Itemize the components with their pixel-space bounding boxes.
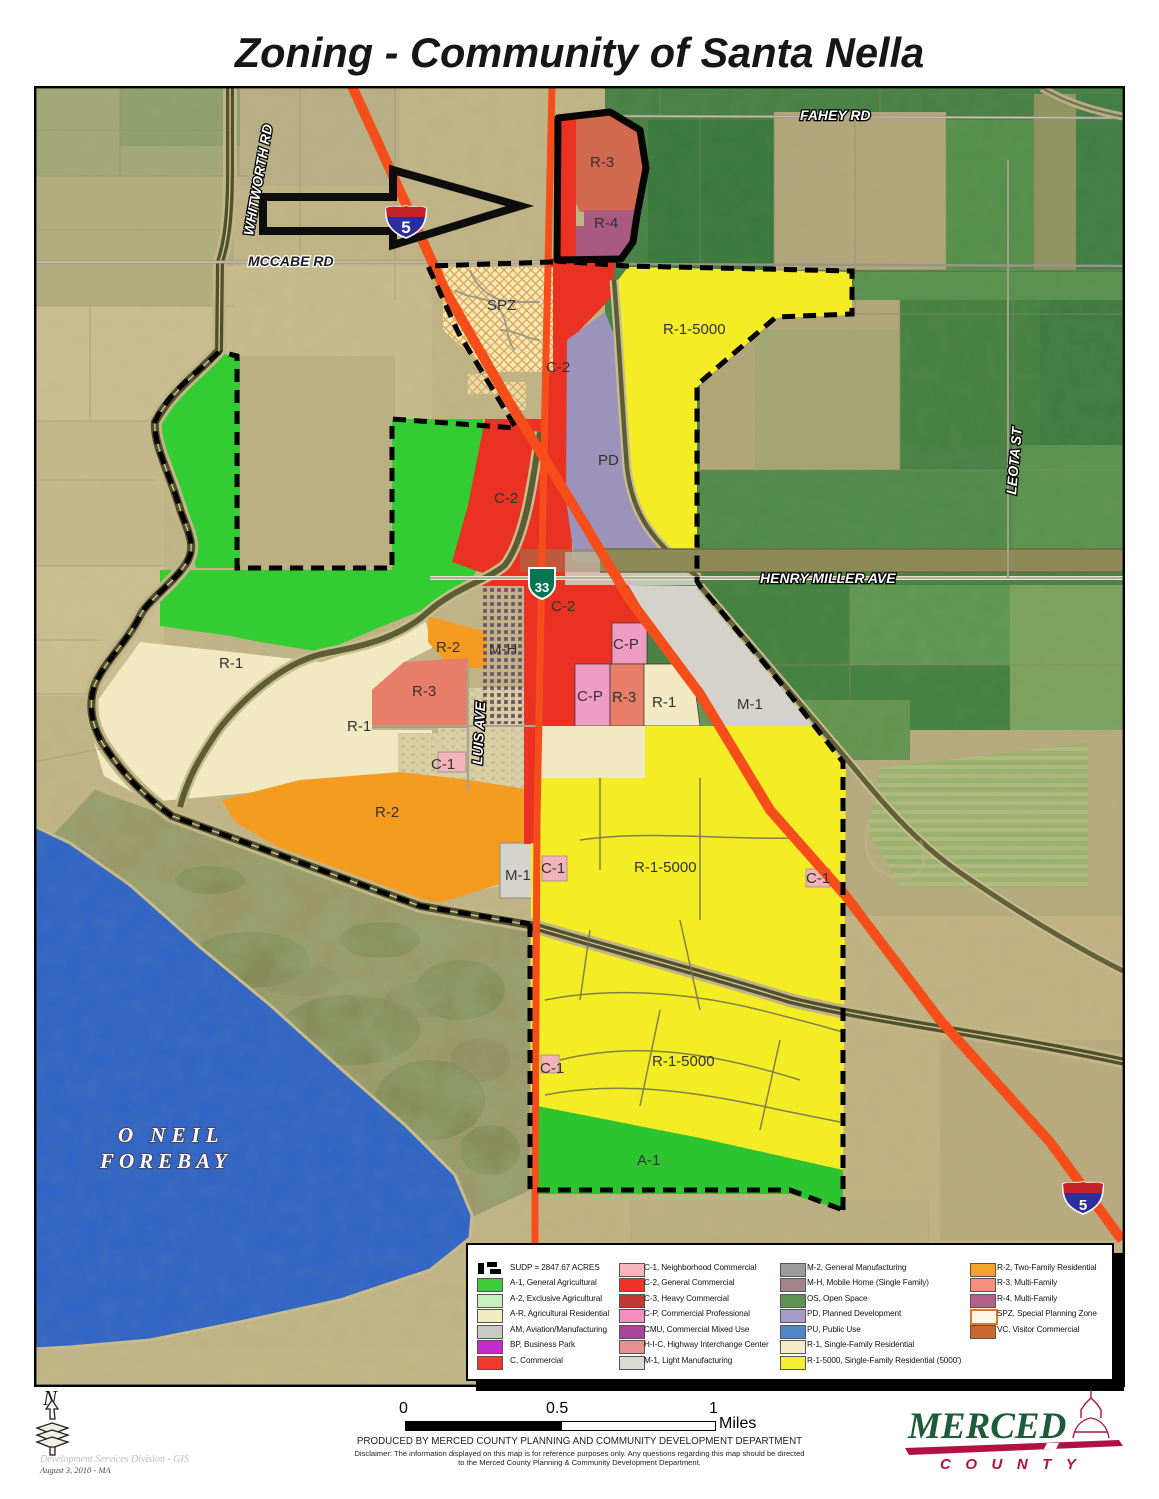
svg-text:R-1: R-1 — [347, 718, 371, 735]
svg-text:R-1-5000: R-1-5000 — [652, 1053, 715, 1070]
svg-text:R-3: R-3 — [612, 689, 636, 706]
svg-text:LUIS AVE: LUIS AVE — [469, 701, 488, 765]
svg-text:C-P: C-P — [577, 688, 603, 705]
svg-text:SPZ: SPZ — [487, 297, 516, 314]
svg-text:HENRY MILLER AVE: HENRY MILLER AVE — [760, 570, 896, 586]
svg-text:R-3: R-3 — [590, 154, 614, 171]
svg-text:COUNTY: COUNTY — [940, 1456, 1090, 1473]
svg-text:FOREBAY: FOREBAY — [99, 1149, 232, 1173]
svg-text:R-1: R-1 — [652, 694, 676, 711]
svg-text:C-2: C-2 — [546, 359, 570, 376]
svg-text:R-3: R-3 — [412, 683, 436, 700]
svg-text:5: 5 — [401, 218, 410, 237]
svg-text:R-2: R-2 — [436, 639, 460, 656]
svg-text:33: 33 — [535, 580, 549, 595]
svg-text:R-1: R-1 — [219, 655, 243, 672]
svg-text:R-4: R-4 — [594, 215, 618, 232]
svg-text:PD: PD — [598, 452, 619, 469]
svg-text:R-1-5000: R-1-5000 — [663, 321, 726, 338]
svg-text:C-2: C-2 — [494, 490, 518, 507]
svg-text:M-1: M-1 — [505, 867, 531, 884]
svg-text:M-1: M-1 — [737, 696, 763, 713]
svg-text:MCCABE RD: MCCABE RD — [248, 253, 334, 269]
svg-text:FAHEY RD: FAHEY RD — [800, 107, 871, 123]
svg-text:C-1: C-1 — [540, 1060, 564, 1077]
svg-text:C-1: C-1 — [806, 870, 830, 887]
svg-text:C-1: C-1 — [541, 860, 565, 877]
svg-text:R-2: R-2 — [375, 804, 399, 821]
svg-text:C-2: C-2 — [551, 598, 575, 615]
svg-text:A-1: A-1 — [637, 1152, 660, 1169]
svg-text:5: 5 — [1079, 1197, 1087, 1214]
svg-text:O NEIL: O NEIL — [118, 1123, 225, 1147]
svg-text:R-1-5000: R-1-5000 — [634, 859, 697, 876]
svg-text:M-H: M-H — [489, 641, 517, 658]
svg-text:C-P: C-P — [613, 636, 639, 653]
svg-text:MERCED: MERCED — [907, 1406, 1066, 1447]
svg-text:C-1: C-1 — [431, 756, 455, 773]
